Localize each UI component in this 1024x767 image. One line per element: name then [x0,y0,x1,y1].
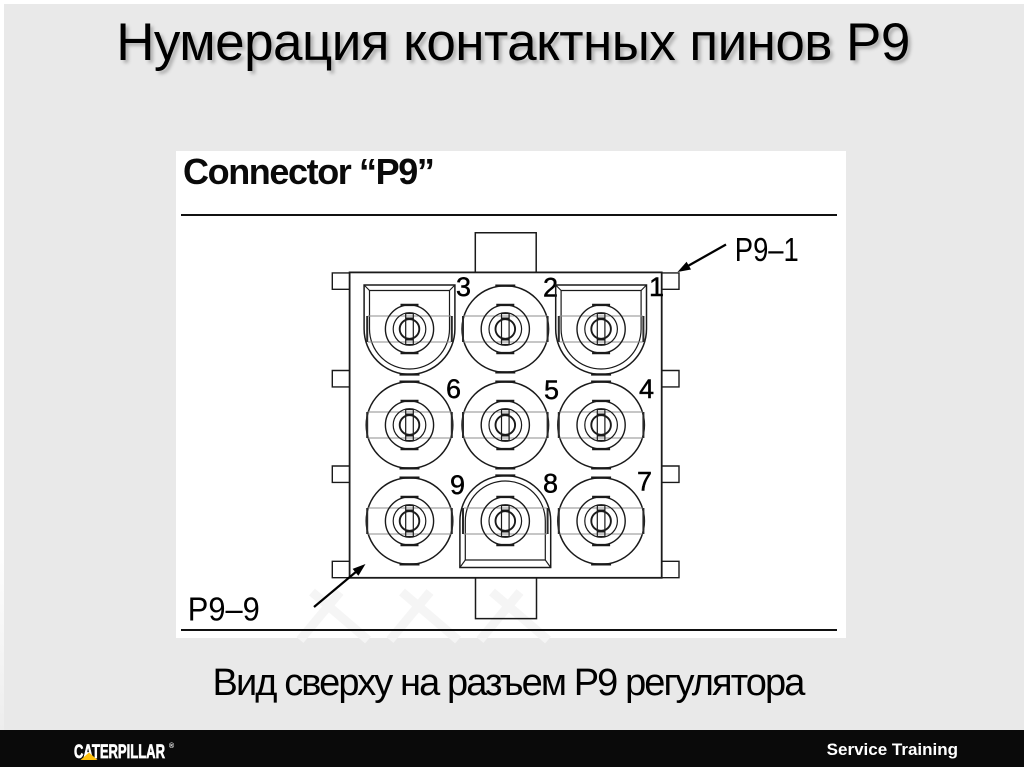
svg-text:3: 3 [456,272,471,302]
svg-text:®: ® [169,742,175,750]
svg-text:8: 8 [543,469,558,499]
svg-text:P9–1: P9–1 [735,231,799,268]
svg-text:4: 4 [639,374,654,404]
svg-text:6: 6 [446,374,461,404]
svg-text:5: 5 [544,375,559,405]
svg-text:P9–9: P9–9 [188,591,260,628]
svg-text:7: 7 [637,467,652,497]
svg-text:1: 1 [649,272,664,302]
svg-text:9: 9 [450,470,465,500]
